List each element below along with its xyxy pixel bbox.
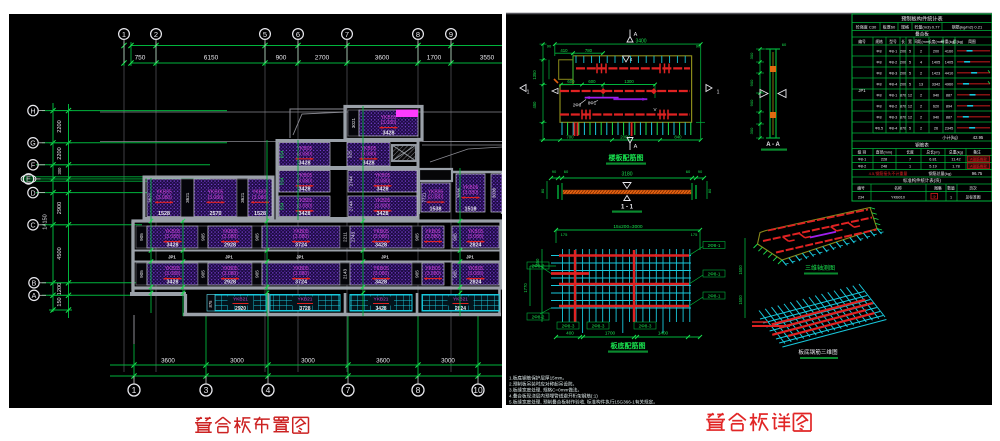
svg-text:900: 900 [749,79,754,86]
svg-text:5.板缝宽度处理, 预制叠合板制作验收, 标准构件执行15G: 5.板缝宽度处理, 预制叠合板制作验收, 标准构件执行15G366-1有关规定。 [509,399,658,406]
svg-text:Φ8-1: Φ8-1 [889,93,898,97]
svg-text:3621: 3621 [147,192,152,203]
svg-text:905: 905 [452,270,457,278]
svg-text:6: 6 [296,30,300,39]
svg-text:200: 200 [900,71,906,75]
svg-text:楼板配筋图: 楼板配筋图 [609,153,644,162]
svg-text:2: 2 [920,49,922,53]
svg-text:板底配筋图: 板底配筋图 [611,341,646,350]
svg-text:Φ8-2: Φ8-2 [858,165,867,169]
svg-text:预制板构件统计表: 预制板构件统计表 [901,15,943,23]
svg-text:5: 5 [909,126,911,130]
svg-text:2Φ8-3: 2Φ8-3 [592,324,605,329]
svg-text:级 别: 级 别 [858,150,867,155]
svg-text:1700: 1700 [605,331,616,336]
svg-text:200: 200 [900,82,906,86]
svg-text:2824: 2824 [455,306,466,312]
svg-text:小计(kg): 小计(kg) [942,134,958,141]
svg-text:1: 1 [950,195,952,199]
svg-text:90: 90 [552,169,557,174]
svg-text:780: 780 [585,48,593,53]
svg-text:(3.080): (3.080) [297,178,313,184]
svg-text:6.81: 6.81 [929,158,936,162]
svg-text:钢筋总量(kg): 钢筋总量(kg) [929,170,953,176]
svg-text:4410: 4410 [945,71,953,75]
svg-text:(3.080): (3.080) [252,195,268,201]
svg-text:Φ8-1: Φ8-1 [858,158,867,162]
svg-text:(3.080): (3.080) [208,195,224,201]
svg-text:2Φ8-1: 2Φ8-1 [708,272,721,277]
svg-text:重(kg): 重(kg) [953,39,964,44]
svg-text:(3.080): (3.080) [428,195,444,201]
svg-text:900: 900 [749,99,754,106]
svg-text:90: 90 [547,44,552,49]
svg-text:1423: 1423 [932,71,940,75]
svg-text:2928: 2928 [224,279,236,285]
svg-text:A: A [634,32,638,38]
svg-text:C: C [30,223,35,230]
svg-text:4500: 4500 [57,247,63,259]
svg-text:300: 300 [749,127,754,134]
svg-text:(3.080): (3.080) [463,190,479,196]
svg-text:228: 228 [881,158,887,162]
svg-text:编号: 编号 [857,186,865,191]
svg-text:G: G [30,141,35,148]
svg-text:V: V [653,107,656,112]
svg-text:2570: 2570 [210,211,222,217]
svg-text:905: 905 [201,233,206,241]
svg-text:YKB21: YKB21 [233,297,248,303]
svg-text:A钢筋骨架: A钢筋骨架 [970,163,987,168]
svg-text:905: 905 [255,270,260,278]
svg-text:300: 300 [57,167,62,175]
svg-text:Φ8-3: Φ8-3 [889,115,898,119]
svg-text:Φ8-2: Φ8-2 [889,60,898,64]
svg-text:2700: 2700 [315,55,330,62]
svg-text:2143: 2143 [343,268,348,279]
svg-text:1: 1 [527,90,530,96]
svg-text:4: 4 [920,60,922,64]
svg-text:4: 4 [266,385,271,395]
svg-text:F: F [31,163,35,170]
svg-text:600: 600 [588,79,596,84]
svg-text:砼强度 C30: 砼强度 C30 [856,23,877,29]
svg-text:JP1: JP1 [296,255,304,260]
svg-text:备注: 备注 [973,150,981,155]
svg-text:4.叠合板现浇层内预埋管线避开桁架钢筋(:1): 4.叠合板现浇层内预埋管线避开桁架钢筋(:1) [509,393,598,400]
svg-text:2Φ8-2: 2Φ8-2 [532,315,545,320]
svg-text:3428: 3428 [377,211,389,217]
svg-text:3428: 3428 [383,130,395,136]
svg-text:1500: 1500 [738,265,743,275]
svg-text:10: 10 [473,385,483,395]
svg-text:YKB010: YKB010 [891,195,905,199]
svg-text:2824: 2824 [470,242,482,248]
svg-text:410: 410 [560,48,568,53]
svg-text:3836: 3836 [456,187,461,198]
svg-text:3036: 3036 [491,187,496,198]
svg-text:11.42: 11.42 [951,158,960,162]
svg-text:887: 887 [946,93,952,97]
svg-text:1528: 1528 [254,211,266,217]
svg-text:页次: 页次 [969,186,977,191]
svg-text:Φ8-2: Φ8-2 [889,104,898,108]
svg-text:5: 5 [909,82,911,86]
svg-text:名称: 名称 [894,186,902,191]
svg-text:YKB21: YKB21 [453,297,468,303]
svg-text:5: 5 [909,49,911,53]
svg-text:5.19: 5.19 [929,165,936,169]
svg-text:3600: 3600 [161,358,175,365]
svg-text:H: H [30,108,35,115]
svg-text:1400: 1400 [658,331,669,336]
svg-text:Φ8: Φ8 [876,93,881,97]
svg-text:1: 1 [122,30,126,39]
svg-text:D: D [30,190,35,197]
svg-text:宽: 宽 [908,39,912,44]
svg-text:1200: 1200 [57,283,63,295]
svg-text:905: 905 [201,270,206,278]
svg-text:60: 60 [782,42,787,47]
svg-text:标准构件统计表(块): 标准构件统计表(块) [903,177,942,184]
svg-text:9: 9 [449,30,453,39]
svg-text:B: B [32,281,37,288]
svg-text:14150: 14150 [43,214,49,230]
svg-text:(3.080): (3.080) [425,271,441,277]
svg-text:7: 7 [345,30,349,39]
svg-text:2: 2 [920,104,922,108]
svg-text:90: 90 [698,169,703,174]
svg-text:200: 200 [900,60,906,64]
svg-text:6150: 6150 [204,55,219,62]
svg-text:1: 1 [132,385,137,395]
svg-text:1700: 1700 [427,55,442,62]
svg-text:654: 654 [279,150,284,158]
svg-text:3000: 3000 [441,358,455,365]
svg-text:(3.080): (3.080) [293,271,309,277]
svg-text:870: 870 [900,126,906,130]
svg-text:Φ8-4: Φ8-4 [889,126,898,130]
svg-text:3428: 3428 [375,242,387,248]
svg-text:8: 8 [416,385,421,395]
svg-text:3428: 3428 [375,306,386,312]
svg-text:总重(kg): 总重(kg) [949,150,964,155]
svg-text:Φ8: Φ8 [876,60,881,64]
svg-text:887: 887 [946,115,952,119]
svg-text:12: 12 [908,115,912,119]
svg-text:150: 150 [57,297,63,306]
svg-text:248: 248 [881,165,887,169]
svg-text:图集: 图集 [934,186,942,191]
svg-text:2: 2 [154,30,158,39]
svg-text:42.95: 42.95 [973,135,984,140]
svg-text:905: 905 [255,233,260,241]
svg-text:2: 2 [920,115,922,119]
svg-text:三维轴测图: 三维轴测图 [805,264,835,272]
svg-text:1.78: 1.78 [952,165,959,169]
svg-text:175: 175 [561,232,568,237]
svg-text:JP1: JP1 [466,255,474,260]
svg-text:1405: 1405 [932,60,940,64]
svg-text:板底钢筋三维图: 板底钢筋三维图 [798,348,838,356]
svg-text:200: 200 [933,49,939,53]
svg-text:(3.080): (3.080) [373,271,389,277]
svg-text:80: 80 [707,188,712,193]
svg-text:4960: 4960 [945,82,953,86]
svg-text:554: 554 [279,177,284,185]
svg-text:4160: 4160 [945,49,953,53]
svg-text:YKB21: YKB21 [298,297,313,303]
svg-text:940: 940 [933,115,939,119]
svg-text:数量: 数量 [947,186,955,191]
svg-text:JP1: JP1 [225,255,233,260]
svg-text:2928: 2928 [224,242,236,248]
svg-text:2743: 2743 [350,231,355,242]
svg-text:A: A [32,293,37,300]
svg-text:15x200=3000: 15x200=3000 [613,224,643,230]
svg-text:3428: 3428 [363,160,375,166]
svg-text:2744: 2744 [348,201,353,212]
svg-text:13: 13 [919,82,923,86]
svg-text:1.板底钢筋保护层厚15mm。: 1.板底钢筋保护层厚15mm。 [509,375,567,382]
svg-text:2211: 2211 [343,232,348,242]
svg-text:2: 2 [920,71,922,75]
svg-text:(3.080): (3.080) [165,271,181,277]
svg-text:长: 长 [901,39,905,44]
svg-text:A: A [634,144,638,150]
svg-text:3428: 3428 [299,186,311,192]
svg-text:(3.080): (3.080) [293,234,309,240]
svg-text:长度: 长度 [906,150,914,155]
svg-text:3021: 3021 [351,117,356,128]
svg-text:905: 905 [139,270,144,278]
svg-text:905: 905 [415,270,420,278]
svg-text:3428: 3428 [377,186,389,192]
svg-text:2Φ8-2: 2Φ8-2 [532,264,545,269]
svg-text:编号: 编号 [858,39,866,44]
svg-text:Φ8-3: Φ8-3 [889,71,898,75]
svg-text:Φ8: Φ8 [876,82,881,86]
svg-text:JP1: JP1 [858,88,866,93]
svg-text:200: 200 [900,49,906,53]
svg-text:Φ: Φ [933,194,936,199]
svg-text:2824: 2824 [470,279,482,285]
svg-text:A - A: A - A [766,142,780,148]
svg-text:4.5,钢筋接头不计重量: 4.5,钢筋接头不计重量 [869,170,908,176]
svg-text:YKB21: YKB21 [374,297,389,303]
svg-text:700: 700 [566,134,574,139]
svg-text:60: 60 [564,169,569,174]
svg-text:2Φ8-1: 2Φ8-1 [708,243,721,248]
svg-text:2Φ8-1: 2Φ8-1 [708,294,721,299]
svg-text:175: 175 [691,232,698,237]
svg-text:3724: 3724 [295,279,307,285]
svg-text:2200: 2200 [57,120,63,132]
svg-text:900: 900 [276,55,287,62]
svg-text:12: 12 [908,93,912,97]
svg-text:1518: 1518 [465,206,477,212]
svg-text:1770: 1770 [523,283,528,293]
svg-text:Φ8: Φ8 [876,49,881,53]
svg-text:(3.080): (3.080) [381,120,397,126]
svg-text:1500: 1500 [738,295,743,305]
svg-text:E: E [26,177,31,184]
svg-text:1538: 1538 [430,206,442,212]
svg-text:(3.080): (3.080) [297,203,313,209]
svg-text:620: 620 [933,104,939,108]
svg-text:3428: 3428 [299,211,311,217]
svg-text:1 - 1: 1 - 1 [621,205,634,211]
svg-text:JP1: JP1 [168,255,176,260]
svg-text:905: 905 [452,233,457,241]
svg-text:2345: 2345 [945,126,953,130]
svg-text:7: 7 [346,385,351,395]
svg-text:(3.080): (3.080) [468,234,484,240]
svg-text:Φ8: Φ8 [876,104,881,108]
svg-text:1350: 1350 [532,70,537,80]
svg-text:3342: 3342 [932,82,940,86]
svg-text:2Φ8-3: 2Φ8-3 [562,324,575,329]
svg-text:3428: 3428 [167,279,179,285]
svg-text:板厚60: 板厚60 [883,23,896,29]
svg-text:8: 8 [416,30,420,39]
svg-text:7721: 7721 [421,192,426,203]
svg-text:96.75: 96.75 [972,171,983,176]
svg-text:(3.080): (3.080) [425,234,441,240]
svg-text:870: 870 [900,115,906,119]
svg-text:870: 870 [900,93,906,97]
svg-text:1: 1 [717,90,720,96]
svg-text:总长(m): 总长(m) [926,150,940,155]
svg-text:3428: 3428 [167,242,179,248]
svg-text:750: 750 [135,55,146,62]
svg-text:Φ8: Φ8 [876,115,881,119]
svg-text:(3.080): (3.080) [297,151,313,157]
svg-text:(3.080): (3.080) [375,203,391,209]
svg-text:3000: 3000 [301,358,315,365]
svg-text:2200: 2200 [57,147,63,159]
svg-text:2: 2 [920,126,922,130]
svg-text:2.预制板吊装时应对称起吊设防。: 2.预制板吊装时应对称起吊设防。 [509,381,577,388]
svg-text:2Φ8: 2Φ8 [573,103,582,108]
svg-text:5: 5 [909,71,911,75]
svg-text:Φ8-4: Φ8-4 [889,82,898,86]
svg-text:554: 554 [279,202,284,210]
svg-text:90: 90 [696,44,701,49]
svg-text:3400: 3400 [635,39,646,45]
svg-text:870: 870 [900,104,906,108]
svg-text:840: 840 [674,134,682,139]
svg-text:3180: 3180 [621,172,632,178]
svg-text:叠合板: 叠合板 [915,30,929,37]
svg-text:3: 3 [204,385,209,395]
svg-text:3728: 3728 [299,306,310,312]
svg-text:600: 600 [567,79,575,84]
svg-text:325: 325 [347,150,352,158]
svg-text:300: 300 [749,52,754,59]
svg-text:3621: 3621 [240,192,245,203]
svg-text:2: 2 [920,93,922,97]
svg-text:3428: 3428 [299,160,311,166]
svg-text:12: 12 [908,104,912,108]
svg-text:80: 80 [540,188,545,193]
svg-text:Φ8-1: Φ8-1 [889,49,898,53]
svg-text:规格: 规格 [901,23,909,29]
svg-text:A钢筋骨架: A钢筋骨架 [970,156,987,161]
svg-text:1528: 1528 [158,211,170,217]
svg-text:见标准图: 见标准图 [965,194,980,199]
svg-text:2000: 2000 [620,134,630,139]
svg-text:3000: 3000 [230,358,244,365]
svg-text:3428: 3428 [375,279,387,285]
svg-text:2Φ8-3: 2Φ8-3 [639,324,652,329]
svg-text:894: 894 [946,104,952,108]
svg-text:(3.080): (3.080) [375,178,391,184]
svg-text:450: 450 [532,101,537,109]
svg-text:234: 234 [858,195,864,199]
svg-text:3600: 3600 [375,55,390,62]
svg-text:(3.080): (3.080) [165,234,181,240]
svg-text:1405: 1405 [945,60,953,64]
svg-text:5: 5 [909,60,911,64]
svg-text:7: 7 [909,158,911,162]
svg-text:直径(mm): 直径(mm) [876,150,893,155]
svg-text:2744: 2744 [348,176,353,187]
svg-text:875: 875 [208,300,213,308]
svg-text:钢筋表: 钢筋表 [915,142,929,149]
svg-text:1300: 1300 [624,79,634,84]
svg-text:400: 400 [566,331,574,336]
svg-text:3550: 3550 [480,55,495,62]
svg-text:Φ8: Φ8 [876,71,881,75]
svg-text:钢筋(kg/m2) 0.21: 钢筋(kg/m2) 0.21 [952,23,983,29]
svg-text:1: 1 [909,165,911,169]
svg-text:60: 60 [686,169,691,174]
svg-text:3600: 3600 [376,358,390,365]
svg-text:3724: 3724 [295,242,307,248]
svg-text:5: 5 [263,30,267,39]
svg-text:905: 905 [415,233,420,241]
svg-text:3621: 3621 [185,192,190,203]
svg-text:砼量(m3) 0.77: 砼量(m3) 0.77 [914,23,940,29]
svg-text:26: 26 [934,126,938,130]
svg-text:简图: 简图 [968,39,976,44]
svg-text:(3.080): (3.080) [222,234,238,240]
svg-text:3.板缝宽度处理, 规格C=0mm做法。: 3.板缝宽度处理, 规格C=0mm做法。 [509,387,582,394]
svg-text:JP1: JP1 [381,255,389,260]
svg-text:(3.080): (3.080) [222,271,238,277]
svg-text:规格: 规格 [875,39,883,44]
svg-text:(3.080): (3.080) [156,195,172,201]
svg-text:Φ6.5: Φ6.5 [875,126,883,130]
svg-text:(3.080): (3.080) [468,271,484,277]
svg-text:905: 905 [139,233,144,241]
svg-text:2920: 2920 [235,306,246,312]
svg-text:940: 940 [933,93,939,97]
svg-text:型号: 型号 [889,39,897,44]
svg-text:(3.080): (3.080) [373,234,389,240]
svg-text:2900: 2900 [57,202,63,214]
